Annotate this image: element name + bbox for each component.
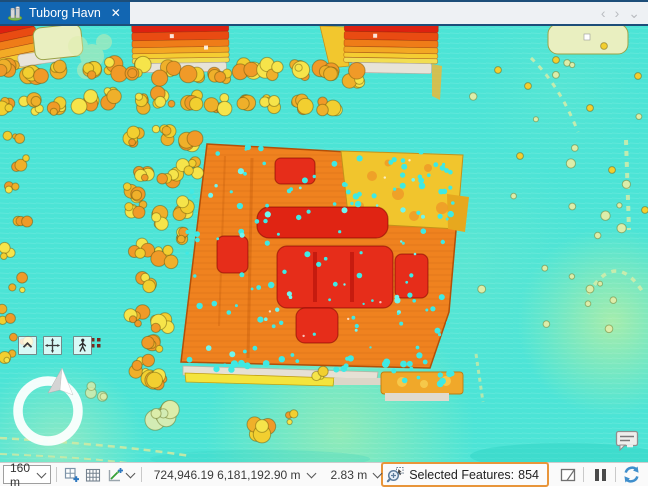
divider (615, 467, 616, 482)
selected-features-count: 854 (518, 468, 539, 482)
elevation-readout[interactable]: 2.83 m (331, 468, 382, 482)
view-extent-icon (559, 466, 577, 484)
message-bubble-icon[interactable] (615, 430, 640, 452)
snapping-button[interactable] (104, 465, 136, 485)
map-scale-value: 160 m (10, 461, 38, 489)
chevron-up-icon (19, 337, 36, 354)
divider (56, 467, 57, 482)
elevation-value: 2.83 m (331, 468, 368, 482)
chevron-down-icon (36, 468, 46, 478)
view-tab-bar: Tuborg Havn ✕ ‹ › ⌄ (0, 0, 648, 26)
arcgis-scene-window: Tuborg Havn ✕ ‹ › ⌄ (0, 0, 648, 486)
chevron-down-icon (306, 468, 316, 478)
pause-drawing-button[interactable] (589, 465, 610, 485)
divider (141, 467, 142, 482)
add-overlay-button[interactable] (62, 465, 83, 485)
collapse-navigator-button[interactable] (18, 336, 37, 355)
tab-scroll-controls: ‹ › ⌄ (601, 2, 648, 24)
refresh-icon (622, 465, 641, 484)
tab-next-icon[interactable]: › (615, 6, 620, 20)
coordinates-value: 724,946.19 6,181,192.90 m (154, 468, 301, 482)
pan-mode-button[interactable] (43, 336, 62, 355)
refresh-button[interactable] (621, 465, 642, 485)
pause-drawing-icon (591, 466, 609, 484)
tab-list-icon[interactable]: ⌄ (628, 6, 640, 20)
local-scene-icon (7, 5, 23, 21)
tab-prev-icon[interactable]: ‹ (601, 6, 606, 20)
bubble-glyph (615, 430, 640, 452)
view-extent-button[interactable] (557, 465, 578, 485)
walking-person-icon (74, 337, 91, 354)
map-canvas[interactable] (0, 26, 648, 462)
add-overlay-grid-icon (63, 466, 81, 484)
compass-icon (8, 362, 92, 446)
grid-button[interactable] (83, 465, 104, 485)
zoom-to-selection-icon (386, 465, 405, 484)
walk-mode-button[interactable] (73, 336, 92, 355)
tab-tuborg-havn[interactable]: Tuborg Havn ✕ (0, 2, 130, 24)
scene-view[interactable] (0, 26, 648, 462)
grid-icon (84, 466, 102, 484)
status-bar: 160 m (0, 462, 648, 486)
close-icon[interactable]: ✕ (111, 7, 121, 19)
tab-label: Tuborg Havn (29, 6, 101, 20)
move-arrows-icon (44, 337, 61, 354)
map-scale-select[interactable]: 160 m (3, 465, 51, 484)
compass-control[interactable] (8, 362, 92, 446)
selected-features-label: Selected Features: (409, 468, 514, 482)
snapping-icon (106, 466, 124, 484)
divider (583, 467, 584, 482)
selected-features-indicator[interactable]: Selected Features: 854 (381, 462, 549, 487)
chevron-down-icon (125, 468, 135, 478)
coordinates-readout[interactable]: 724,946.19 6,181,192.90 m (154, 468, 315, 482)
